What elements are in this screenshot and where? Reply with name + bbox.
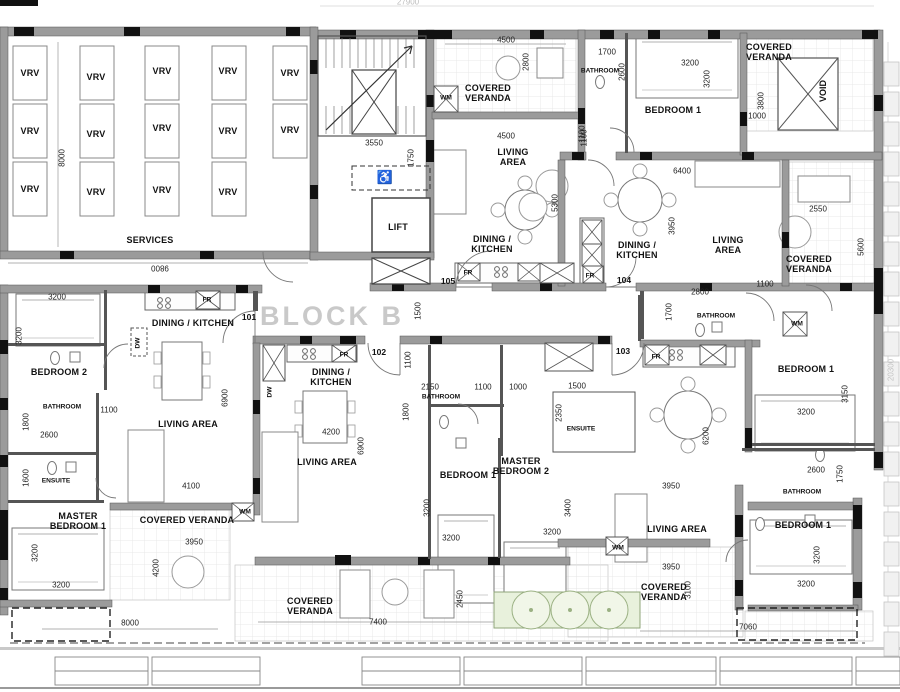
room-label-veranda-104: COVERED VERANDA	[746, 42, 792, 62]
room-label-dining-102: DINING / KITCHEN	[310, 367, 351, 387]
fr-label-103: FR	[652, 353, 661, 360]
vrv-label: VRV	[219, 187, 238, 197]
vrv-label: VRV	[87, 129, 106, 139]
fr-label-101: FR	[203, 296, 212, 303]
dim-bedroom1-103-w: 3200	[797, 409, 815, 418]
dim-bath-101-w: 2600	[40, 432, 58, 441]
room-label-lift: LIFT	[388, 222, 408, 232]
unit-number-105: 105	[441, 277, 455, 287]
room-label-veranda-right: COVERED VERANDA	[786, 254, 832, 274]
dim-living-105-depth: 5300	[552, 194, 561, 212]
dim-veranda-103-h: 3100	[685, 581, 694, 599]
room-label-ensuite-101: ENSUITE	[42, 477, 71, 484]
room-label-master2-102: MASTER BEDROOM 2	[493, 456, 549, 476]
dim-veranda-101: 3950	[185, 539, 203, 548]
vrv-label: VRV	[153, 123, 172, 133]
dim-104-1100: 1100	[581, 129, 590, 146]
dim-102-1000: 1000	[509, 384, 527, 393]
wheelchair-symbol: ♿	[377, 171, 393, 186]
block-title: BLOCK B	[260, 301, 404, 331]
room-label-living-104: LIVING AREA	[712, 235, 743, 255]
annotation-layer: VRVVRVVRVVRVVRVVRVVRVVRVVRVVRVVRVVRVVRVV…	[0, 0, 900, 692]
dim-veranda-right-h: 5600	[858, 238, 867, 256]
dim-living-101-w: 4100	[182, 483, 200, 492]
dim-bedroom1-102-w: 3200	[442, 535, 460, 544]
room-label-master1-101: MASTER BEDROOM 1	[50, 511, 106, 531]
dim-bath-102-h: 1800	[403, 403, 412, 421]
dim-bedroom1-104-w: 3200	[681, 60, 699, 69]
fr-label-104: FR	[586, 272, 595, 279]
room-label-ensuite-102: ENSUITE	[567, 425, 596, 432]
dim-corridor: 1500	[415, 302, 424, 320]
dim-ensuite-101: 1600	[23, 469, 32, 487]
dim-bath-104-h: 2600	[619, 63, 628, 81]
dim-bedroom1b-103-w: 3200	[797, 581, 815, 590]
fr-label-105: FR	[464, 269, 473, 276]
vrv-label: VRV	[219, 66, 238, 76]
dim-bedroom1-102-h: 3200	[424, 499, 433, 517]
dim-master2-102-h: 3400	[565, 499, 574, 517]
dim-bath-103-w: 2800	[691, 289, 709, 298]
dim-corridor-entry: 1100	[405, 351, 414, 368]
vrv-label: VRV	[21, 126, 40, 136]
dim-102-1500: 1500	[568, 383, 586, 392]
room-label-veranda-105: COVERED VERANDA	[465, 83, 511, 103]
room-label-veranda-101: COVERED VERANDA	[140, 515, 235, 525]
dim-102-1100: 1100	[474, 384, 491, 393]
dim-bath2-103-w: 2600	[807, 467, 825, 476]
room-label-bath2-103: BATHROOM	[783, 488, 821, 495]
room-label-dining-105: DINING / KITCHEN	[471, 234, 512, 254]
dim-104-1000: 1000	[748, 113, 766, 122]
room-label-bedroom1-103: BEDROOM 1	[778, 364, 834, 374]
dim-bath-101: 1800	[23, 413, 32, 431]
unit-number-101: 101	[242, 313, 256, 323]
room-label-veranda-bottom: COVERED VERANDA	[287, 596, 333, 616]
room-label-dining-104: DINING / KITCHEN	[616, 240, 657, 260]
dim-dining-102: 4200	[322, 429, 340, 438]
dim-living-103-w: 3950	[662, 483, 680, 492]
room-label-bath-102: BATHROOM	[422, 393, 460, 400]
vrv-label: VRV	[21, 68, 40, 78]
vrv-label: VRV	[21, 184, 40, 194]
vrv-label: VRV	[153, 66, 172, 76]
unit-number-104: 104	[617, 276, 631, 286]
dim-veranda-bottom-h: 2450	[457, 590, 466, 608]
vrv-label: VRV	[281, 68, 300, 78]
vrv-label: VRV	[87, 72, 106, 82]
dim-living-105: 4500	[497, 133, 515, 142]
room-label-living-101: LIVING AREA	[158, 419, 218, 429]
unit-number-102: 102	[372, 348, 386, 358]
dim-living-101-depth: 6900	[222, 389, 231, 407]
room-label-bath-104: BATHROOM	[581, 67, 619, 74]
room-label-bedroom1b-103: BEDROOM 1	[775, 520, 831, 530]
dim-master2-102-w: 3200	[543, 529, 561, 538]
wm-label-101: WM	[239, 508, 251, 515]
dim-bath2-103-h: 1750	[837, 465, 846, 483]
dim-veranda-105-depth: 2800	[523, 53, 532, 71]
room-label-bath-101: BATHROOM	[43, 403, 81, 410]
room-label-veranda-103: COVERED VERANDA	[641, 582, 687, 602]
floor-plan: VRVVRVVRVVRVVRVVRVVRVVRVVRVVRVVRVVRVVRVV…	[0, 0, 900, 692]
dim-veranda-105: 4500	[497, 37, 515, 46]
room-label-living-102: LIVING AREA	[297, 457, 357, 467]
room-label-void: VOID	[818, 80, 828, 102]
dim-veranda-right-w: 2550	[809, 206, 827, 215]
dim-105-1100: 1100	[579, 125, 588, 142]
dim-bedroom1b-103-h: 3200	[814, 546, 823, 564]
room-label-dining-101: DINING / KITCHEN	[152, 318, 234, 328]
dim-bottom-left: 8000	[121, 620, 139, 629]
vrv-label: VRV	[219, 126, 238, 136]
wm-label-105: WM	[440, 94, 452, 101]
room-label-living-103: LIVING AREA	[647, 524, 707, 534]
vrv-label: VRV	[281, 125, 300, 135]
dim-master1-101-w: 3200	[52, 582, 70, 591]
wm-label-103-top: WM	[791, 320, 803, 327]
dim-bedroom2-height: 3200	[16, 327, 25, 345]
dim-bedroom2-width: 3200	[48, 294, 66, 303]
room-label-bedroom1-102: BEDROOM 1	[440, 470, 496, 480]
dim-living-102-depth: 6900	[358, 437, 367, 455]
dim-bath-104-w: 1700	[598, 49, 616, 58]
dim-master1-101-h: 3200	[32, 544, 41, 562]
fr-label-102: FR	[340, 351, 349, 358]
dim-bedroom1-104-h: 3200	[704, 70, 713, 88]
dim-104-6400: 6400	[673, 168, 691, 177]
dw-label-101: DW	[134, 338, 141, 349]
vrv-label: VRV	[87, 187, 106, 197]
vrv-label: VRV	[153, 185, 172, 195]
dim-104-3950: 3950	[669, 217, 678, 235]
room-label-bedroom1-104: BEDROOM 1	[645, 105, 701, 115]
room-label-bath-103: BATHROOM	[697, 312, 735, 319]
wm-label-103-btm: WM	[612, 544, 624, 551]
room-label-services: SERVICES	[127, 235, 174, 245]
room-label-bedroom2-101: BEDROOM 2	[31, 367, 87, 377]
dim-living-103-depth: 6200	[703, 427, 712, 445]
dim-bath-103-h: 1700	[666, 303, 675, 321]
dim-103-1100: 1100	[756, 281, 773, 290]
dim-services-width: 9800	[151, 263, 169, 272]
dim-veranda-104-h: 3800	[758, 92, 767, 110]
dim-bedroom1-103-h: 3150	[842, 385, 851, 403]
dim-veranda-101-h: 4200	[153, 559, 162, 577]
dim-stair-depth: 1750	[408, 149, 417, 167]
dim-bath-102-w: 2150	[421, 384, 439, 393]
dim-bottom-right: 7060	[739, 624, 757, 633]
dim-veranda-103: 3950	[662, 564, 680, 573]
dim-services-height: 8000	[59, 149, 68, 167]
dim-veranda-bottom: 7400	[369, 619, 387, 628]
dim-overall-right: 20300	[888, 359, 897, 381]
dim-overall-top: 27900	[397, 0, 419, 7]
dw-label-102: DW	[266, 387, 273, 398]
unit-number-103: 103	[616, 347, 630, 357]
room-label-living-105: LIVING AREA	[497, 147, 528, 167]
dim-stair-width: 3550	[365, 140, 383, 149]
dim-master2-102: 2350	[556, 404, 565, 422]
dim-101-1100: 1100	[100, 407, 117, 416]
